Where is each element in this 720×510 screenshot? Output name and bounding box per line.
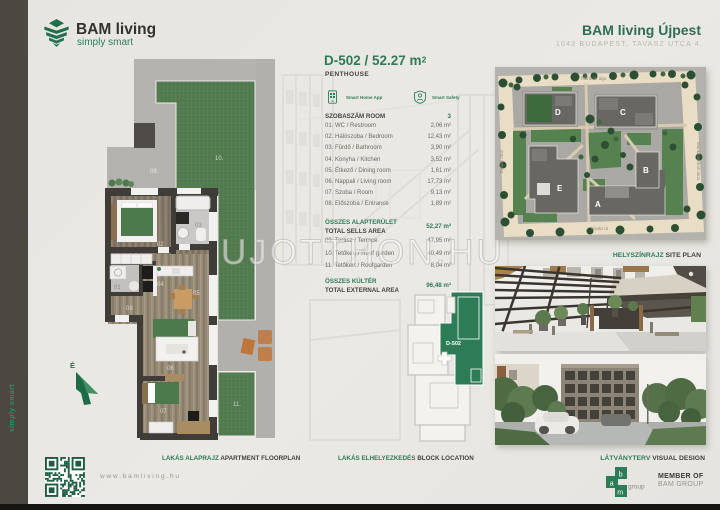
svg-text:C: C	[620, 108, 626, 117]
svg-text:03: 03	[195, 223, 202, 229]
svg-text:group: group	[628, 484, 645, 491]
svg-text:b: b	[619, 471, 623, 478]
svg-text:A: A	[595, 200, 601, 209]
svg-text:02: 02	[157, 242, 164, 248]
svg-text:05: 05	[193, 291, 200, 297]
svg-text:07: 07	[160, 409, 167, 415]
svg-text:06: 06	[167, 366, 174, 372]
svg-text:10.: 10.	[215, 156, 224, 162]
svg-text:D: D	[555, 108, 561, 117]
svg-text:11.: 11.	[233, 402, 241, 408]
svg-text:E: E	[557, 184, 563, 193]
svg-text:09.: 09.	[150, 169, 159, 175]
svg-text:Munkásotthon utca: Munkásotthon utca	[696, 142, 701, 181]
svg-text:Tavasz utca: Tavasz utca	[499, 150, 504, 174]
svg-text:Mártírok útja: Mártírok útja	[581, 76, 607, 81]
svg-text:É: É	[70, 361, 75, 370]
svg-text:B: B	[643, 166, 649, 175]
svg-text:István út: István út	[591, 226, 609, 231]
svg-text:D-502: D-502	[446, 341, 461, 347]
svg-text:04: 04	[157, 282, 164, 288]
svg-text:01: 01	[114, 285, 121, 291]
svg-text:08: 08	[126, 306, 133, 312]
svg-text:m: m	[617, 489, 623, 496]
svg-text:a: a	[610, 480, 614, 487]
